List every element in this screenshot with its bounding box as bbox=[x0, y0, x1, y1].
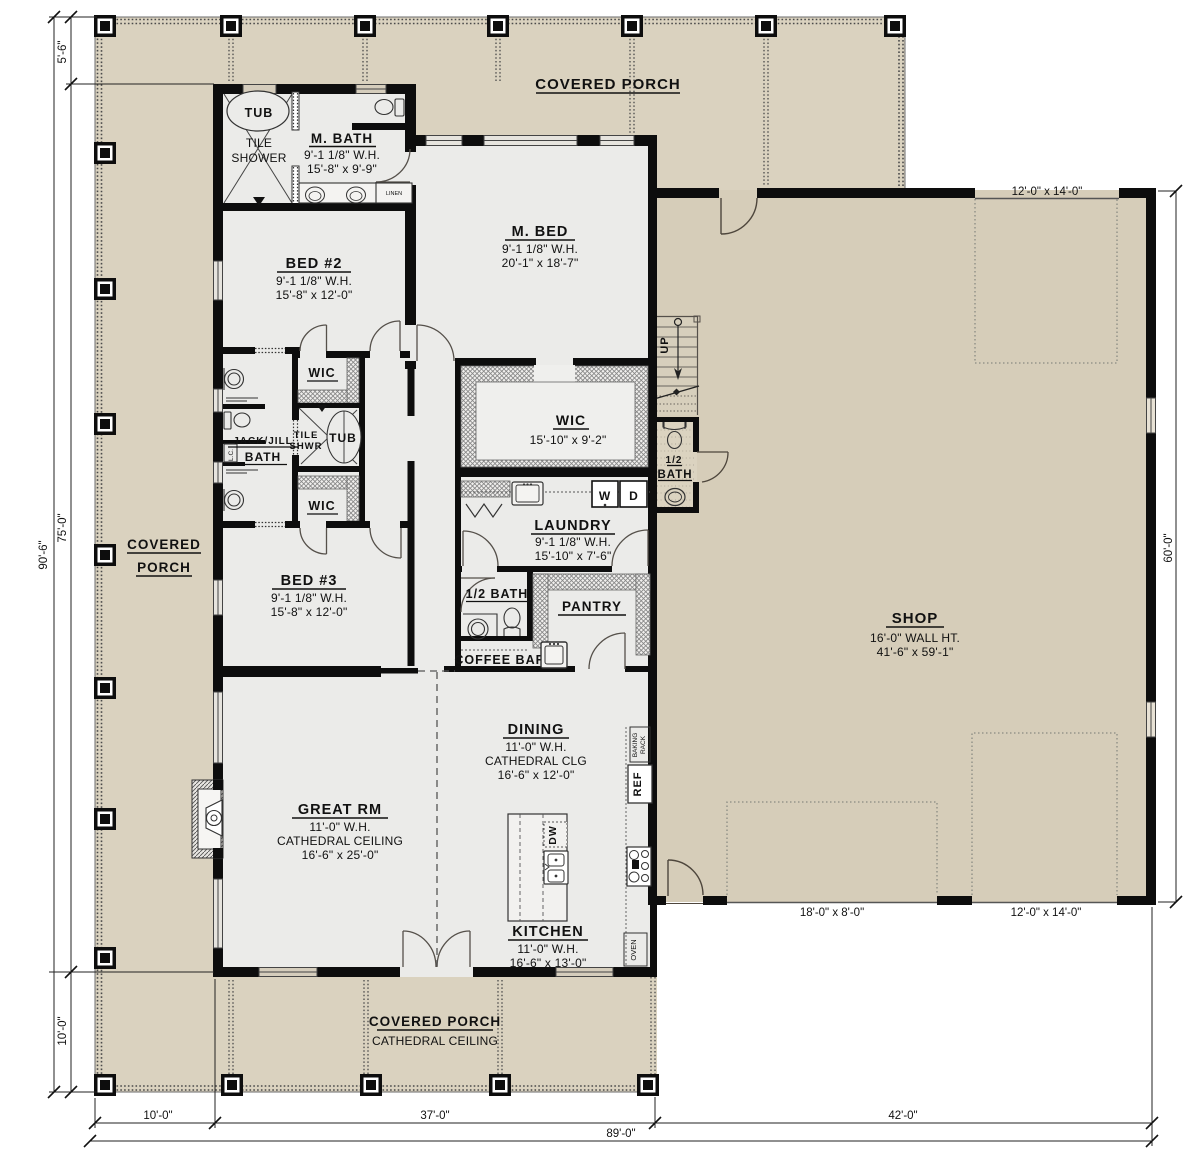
svg-text:16'-6" x 25'-0": 16'-6" x 25'-0" bbox=[302, 848, 379, 862]
svg-text:15'-8" x 12'-0": 15'-8" x 12'-0" bbox=[271, 605, 348, 619]
svg-text:PORCH: PORCH bbox=[137, 560, 191, 575]
svg-text:1/2: 1/2 bbox=[666, 455, 683, 466]
svg-text:15'-10" x 7'-6": 15'-10" x 7'-6" bbox=[535, 549, 612, 563]
svg-text:15'-8" x 12'-0": 15'-8" x 12'-0" bbox=[276, 288, 353, 302]
svg-text:RACK: RACK bbox=[640, 735, 647, 754]
svg-text:42'-0": 42'-0" bbox=[888, 1110, 917, 1122]
svg-text:10'-0": 10'-0" bbox=[57, 1016, 69, 1045]
svg-text:COVERED PORCH: COVERED PORCH bbox=[535, 76, 681, 93]
svg-text:41'-6" x 59'-1": 41'-6" x 59'-1" bbox=[877, 645, 954, 659]
svg-text:15'-8" x 9'-9": 15'-8" x 9'-9" bbox=[307, 162, 377, 176]
svg-text:9'-1 1/8" W.H.: 9'-1 1/8" W.H. bbox=[276, 274, 352, 288]
svg-text:LINEN: LINEN bbox=[386, 191, 402, 197]
svg-text:CATHEDRAL CEILING: CATHEDRAL CEILING bbox=[372, 1034, 498, 1048]
svg-text:9'-1 1/8" W.H.: 9'-1 1/8" W.H. bbox=[535, 535, 611, 549]
svg-text:TUB: TUB bbox=[245, 106, 274, 120]
svg-text:9'-1 1/8" W.H.: 9'-1 1/8" W.H. bbox=[304, 148, 380, 162]
svg-text:W: W bbox=[599, 489, 611, 503]
svg-text:75'-0": 75'-0" bbox=[57, 513, 69, 542]
svg-text:89'-0": 89'-0" bbox=[606, 1128, 635, 1140]
svg-text:COVERED: COVERED bbox=[127, 537, 201, 552]
svg-text:11'-0" W.H.: 11'-0" W.H. bbox=[309, 820, 370, 834]
svg-text:SHOP: SHOP bbox=[892, 610, 939, 627]
svg-text:JACK/JILL: JACK/JILL bbox=[233, 436, 293, 447]
svg-text:37'-0": 37'-0" bbox=[420, 1110, 449, 1122]
svg-text:16'-0" WALL HT.: 16'-0" WALL HT. bbox=[870, 631, 960, 645]
svg-text:CATHEDRAL CEILING: CATHEDRAL CEILING bbox=[277, 834, 403, 848]
svg-text:KITCHEN: KITCHEN bbox=[512, 924, 583, 940]
svg-text:1/2 BATH: 1/2 BATH bbox=[466, 587, 529, 601]
svg-text:BATH: BATH bbox=[245, 450, 281, 464]
svg-text:OVEN: OVEN bbox=[629, 939, 638, 960]
svg-text:20'-1" x 18'-7": 20'-1" x 18'-7" bbox=[502, 256, 579, 270]
svg-text:DINING: DINING bbox=[508, 722, 565, 738]
svg-text:12'-0" x 14'-0": 12'-0" x 14'-0" bbox=[1012, 186, 1083, 198]
svg-text:L.C.: L.C. bbox=[228, 449, 235, 461]
svg-text:WIC: WIC bbox=[308, 499, 335, 513]
svg-text:WIC: WIC bbox=[308, 366, 335, 380]
svg-text:BAKING: BAKING bbox=[632, 733, 639, 758]
svg-text:DW: DW bbox=[547, 825, 559, 845]
svg-text:16'-6" x 12'-0": 16'-6" x 12'-0" bbox=[498, 768, 575, 782]
svg-text:11'-0" W.H.: 11'-0" W.H. bbox=[517, 942, 578, 956]
svg-text:TILE: TILE bbox=[294, 430, 319, 441]
svg-text:M. BATH: M. BATH bbox=[311, 131, 373, 146]
svg-text:GREAT RM: GREAT RM bbox=[298, 802, 382, 818]
svg-text:9'-1 1/8" W.H.: 9'-1 1/8" W.H. bbox=[271, 591, 347, 605]
svg-text:TILE: TILE bbox=[246, 136, 272, 150]
svg-text:PANTRY: PANTRY bbox=[562, 599, 622, 614]
svg-text:TUB: TUB bbox=[329, 431, 357, 445]
svg-text:UP: UP bbox=[659, 336, 671, 353]
svg-text:90'-6": 90'-6" bbox=[38, 540, 50, 569]
svg-text:BED #3: BED #3 bbox=[281, 573, 338, 589]
svg-text:BATH: BATH bbox=[657, 469, 692, 481]
svg-text:18'-0" x 8'-0": 18'-0" x 8'-0" bbox=[800, 907, 864, 919]
svg-text:BED #2: BED #2 bbox=[286, 256, 343, 272]
svg-text:WIC: WIC bbox=[556, 412, 586, 428]
svg-text:COVERED PORCH: COVERED PORCH bbox=[369, 1014, 501, 1029]
svg-text:11'-0" W.H.: 11'-0" W.H. bbox=[505, 740, 566, 754]
svg-text:CATHEDRAL CLG: CATHEDRAL CLG bbox=[485, 754, 587, 768]
svg-text:16'-6" x 13'-0": 16'-6" x 13'-0" bbox=[510, 956, 587, 970]
svg-text:SHOWER: SHOWER bbox=[231, 151, 286, 165]
svg-text:15'-10" x 9'-2": 15'-10" x 9'-2" bbox=[530, 433, 607, 447]
svg-text:10'-0": 10'-0" bbox=[143, 1110, 172, 1122]
svg-text:COFFEE BAR: COFFEE BAR bbox=[454, 653, 545, 667]
svg-text:12'-0" x 14'-0": 12'-0" x 14'-0" bbox=[1011, 907, 1082, 919]
svg-text:REF: REF bbox=[632, 772, 644, 797]
svg-text:LAUNDRY: LAUNDRY bbox=[534, 518, 611, 534]
svg-text:9'-1 1/8" W.H.: 9'-1 1/8" W.H. bbox=[502, 242, 578, 256]
svg-text:60'-0": 60'-0" bbox=[1163, 533, 1175, 562]
svg-text:D: D bbox=[629, 489, 639, 503]
svg-text:5'-6": 5'-6" bbox=[57, 41, 69, 64]
svg-text:M. BED: M. BED bbox=[512, 224, 569, 240]
